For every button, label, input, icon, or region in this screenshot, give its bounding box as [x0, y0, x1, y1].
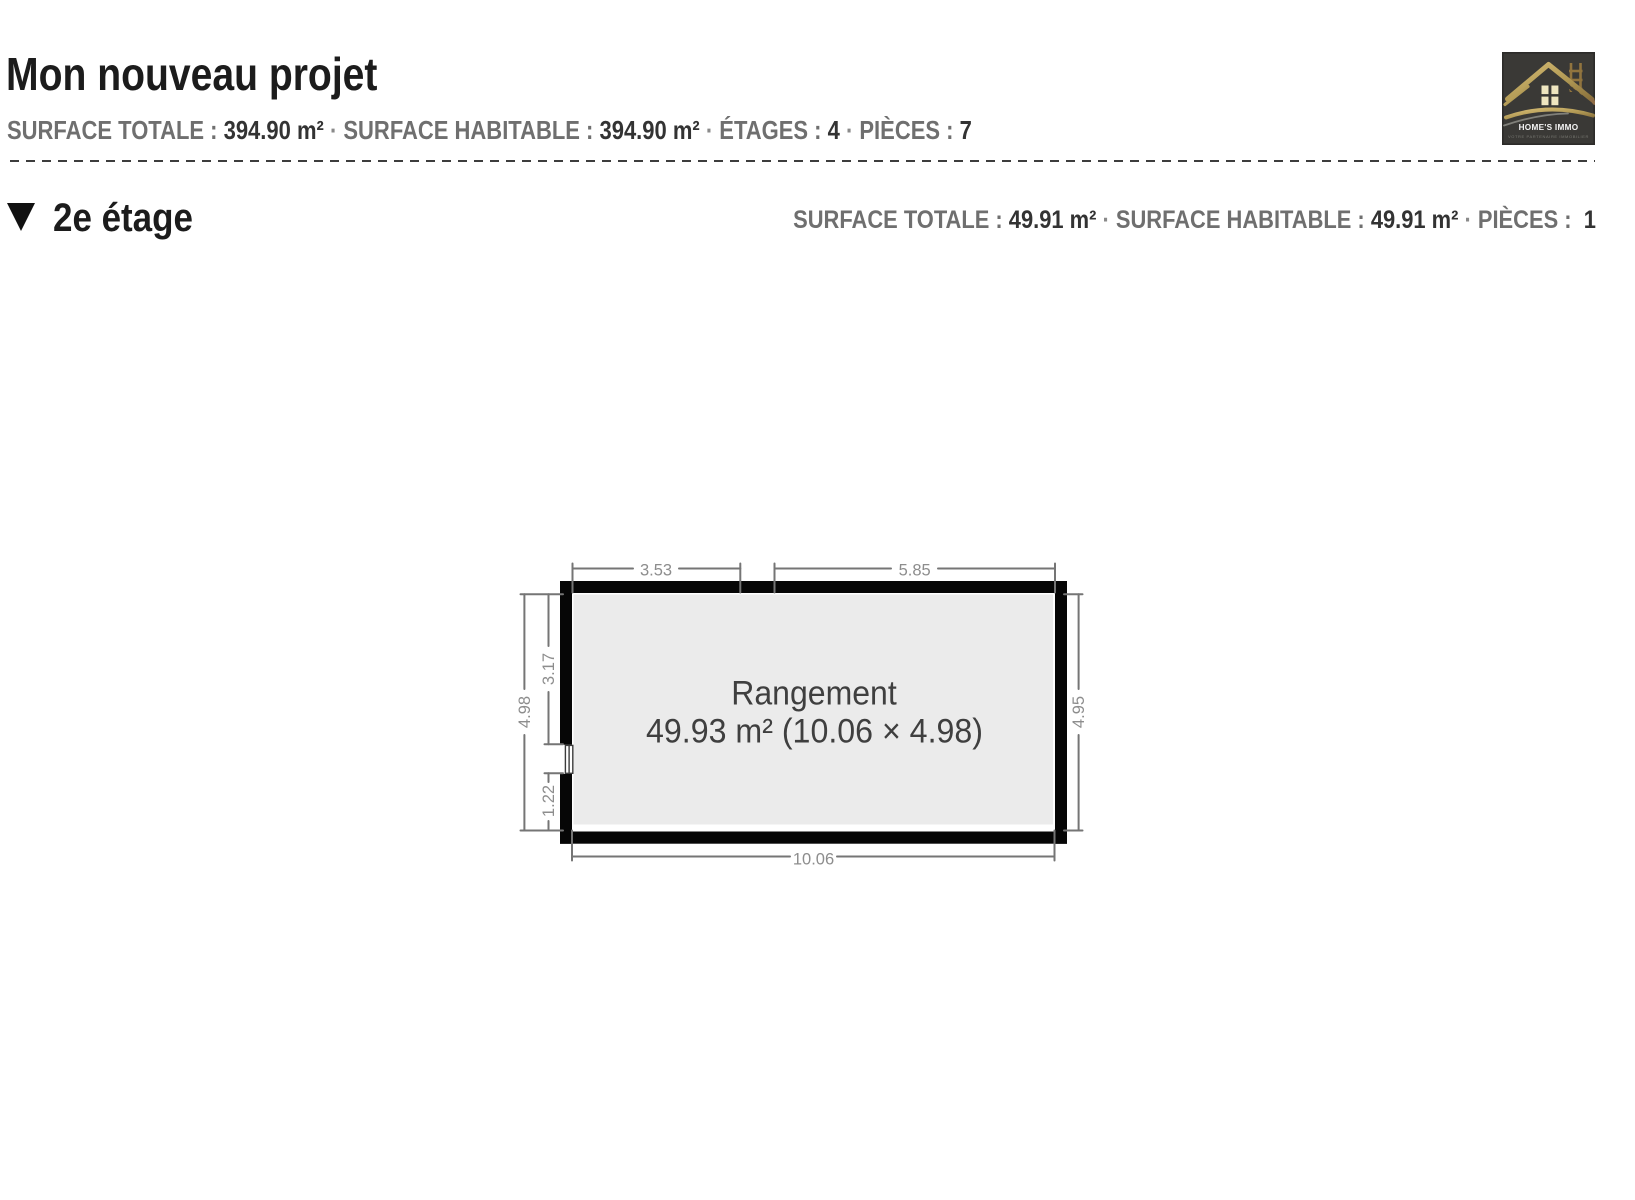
svg-text:4.95: 4.95 — [1070, 696, 1088, 728]
svg-text:Rangement: Rangement — [731, 675, 897, 713]
svg-text:1.22: 1.22 — [540, 785, 558, 817]
svg-text:3.17: 3.17 — [540, 653, 558, 685]
svg-text:5.85: 5.85 — [899, 562, 931, 580]
svg-text:3.53: 3.53 — [640, 562, 672, 580]
svg-text:49.93 m² (10.06 × 4.98): 49.93 m² (10.06 × 4.98) — [646, 713, 983, 751]
svg-text:10.06: 10.06 — [793, 850, 834, 868]
svg-text:HOME'S IMMO: HOME'S IMMO — [1519, 123, 1579, 132]
svg-text:4.98: 4.98 — [516, 696, 534, 728]
svg-text:VOTRE PARTENAIRE IMMOBILIER: VOTRE PARTENAIRE IMMOBILIER — [1508, 134, 1589, 139]
